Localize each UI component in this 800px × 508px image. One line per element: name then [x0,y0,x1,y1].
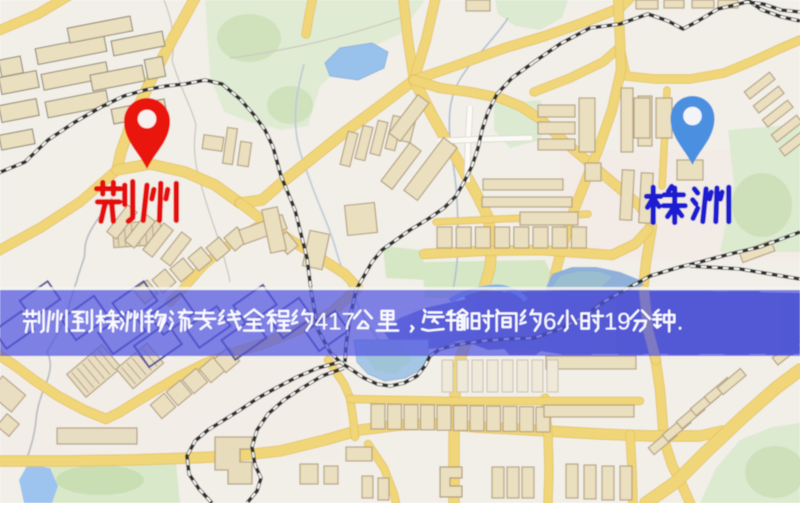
svg-text:.: . [677,309,684,336]
svg-text:6: 6 [543,309,556,336]
svg-text:417: 417 [315,309,355,336]
svg-text:19: 19 [604,309,631,336]
